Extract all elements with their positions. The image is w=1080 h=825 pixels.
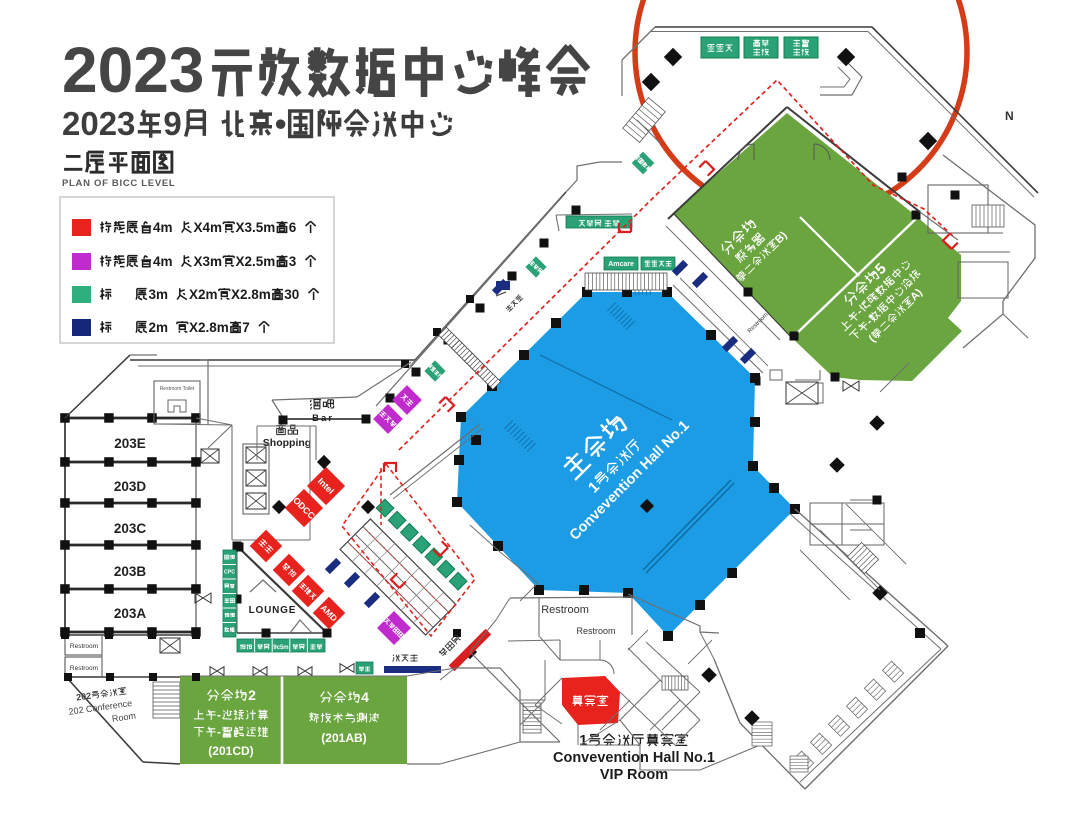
- svg-text:Restroom: Restroom: [577, 626, 616, 636]
- svg-text:X3.5m: X3.5m: [236, 220, 276, 235]
- svg-text:X4m: X4m: [194, 220, 223, 235]
- svg-text:Restroom: Restroom: [70, 643, 98, 650]
- svg-text:X3m: X3m: [194, 254, 223, 269]
- svg-text:202: 202: [76, 691, 92, 703]
- svg-text:4: 4: [361, 689, 369, 705]
- svg-text:Shopping: Shopping: [263, 437, 311, 449]
- svg-text:X2m: X2m: [189, 287, 218, 302]
- svg-text:(201AB): (201AB): [321, 731, 366, 745]
- svg-text:X2.8m: X2.8m: [231, 287, 271, 302]
- svg-text:203A: 203A: [114, 606, 147, 621]
- svg-text:9: 9: [163, 105, 181, 142]
- svg-text:2023: 2023: [62, 34, 204, 106]
- svg-text:Convevention Hall No.1: Convevention Hall No.1: [553, 750, 715, 766]
- svg-text:LOUNGE: LOUNGE: [249, 605, 297, 616]
- svg-text:Restroom: Restroom: [70, 665, 98, 672]
- svg-text:•: •: [275, 105, 287, 142]
- svg-text:2m: 2m: [149, 320, 169, 335]
- svg-text:203B: 203B: [114, 564, 147, 579]
- svg-text:4m: 4m: [153, 220, 173, 235]
- svg-text:3m: 3m: [149, 287, 169, 302]
- svg-text:N: N: [1005, 109, 1014, 123]
- svg-text:PLAN OF BICC LEVEL: PLAN OF BICC LEVEL: [62, 178, 175, 189]
- svg-text:VIP Room: VIP Room: [600, 767, 668, 783]
- svg-text:2: 2: [248, 687, 256, 703]
- svg-text:-: -: [217, 708, 221, 722]
- svg-text:203D: 203D: [114, 479, 147, 494]
- svg-text:6: 6: [289, 220, 297, 235]
- svg-text:CPC: CPC: [224, 570, 235, 576]
- svg-text:7: 7: [242, 320, 250, 335]
- svg-text:9c5m: 9c5m: [273, 645, 288, 651]
- svg-text:Restroom: Restroom: [541, 604, 589, 616]
- svg-text:203C: 203C: [114, 521, 147, 536]
- svg-text:Bar: Bar: [312, 413, 334, 424]
- svg-text:Restroom Toilet: Restroom Toilet: [160, 386, 195, 392]
- svg-text:203E: 203E: [114, 436, 146, 451]
- svg-text:X2.5m: X2.5m: [236, 254, 276, 269]
- svg-text:2023: 2023: [62, 105, 135, 142]
- svg-text:(201CD): (201CD): [208, 744, 253, 758]
- svg-text:X2.8m: X2.8m: [189, 320, 229, 335]
- svg-text:-: -: [217, 725, 221, 739]
- svg-text:3: 3: [289, 254, 297, 269]
- svg-text:Amcare: Amcare: [608, 261, 634, 268]
- svg-text:4m: 4m: [153, 254, 173, 269]
- svg-text:30: 30: [284, 287, 299, 302]
